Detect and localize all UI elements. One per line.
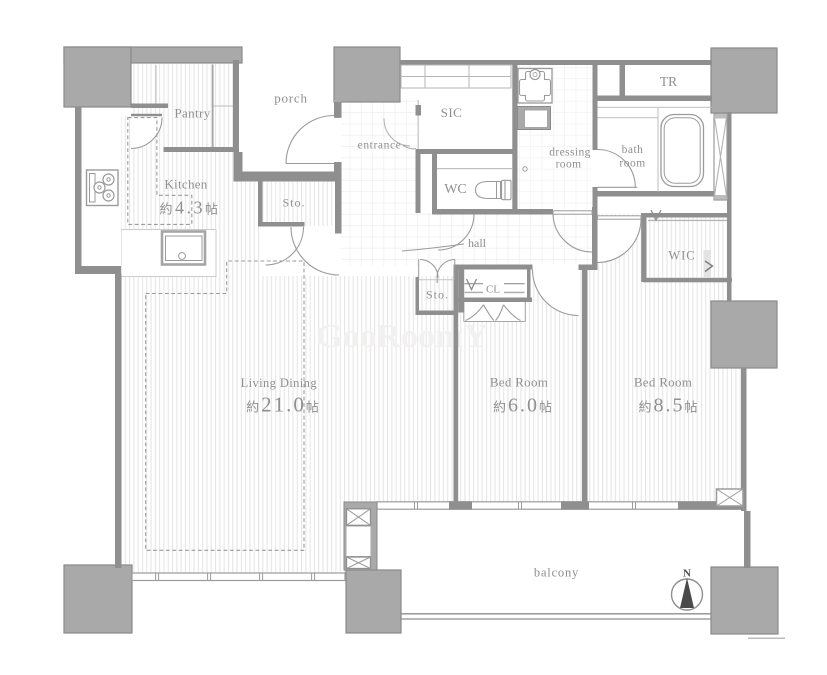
- svg-text:N: N: [683, 568, 691, 580]
- svg-text:Bed Room: Bed Room: [490, 375, 548, 390]
- svg-text:GooRoomY: GooRoomY: [316, 318, 488, 355]
- svg-text:TR: TR: [660, 74, 677, 89]
- svg-text:WIC: WIC: [668, 249, 695, 263]
- svg-text:Sto.: Sto.: [426, 288, 449, 302]
- svg-text:room: room: [556, 159, 582, 171]
- svg-text:SIC: SIC: [441, 105, 463, 120]
- svg-text:balcony: balcony: [534, 566, 579, 580]
- svg-text:hall: hall: [468, 236, 487, 250]
- svg-text:room: room: [619, 158, 645, 170]
- svg-text:Bed Room: Bed Room: [634, 375, 692, 390]
- svg-text:Kitchen: Kitchen: [164, 177, 207, 192]
- svg-text:Pantry: Pantry: [174, 106, 210, 121]
- svg-text:Living Dining: Living Dining: [241, 376, 318, 390]
- svg-text:CL: CL: [486, 284, 500, 296]
- svg-text:dressing: dressing: [549, 147, 591, 159]
- svg-text:bath: bath: [622, 144, 644, 156]
- svg-text:Sto.: Sto.: [282, 196, 305, 210]
- svg-text:WC: WC: [444, 182, 467, 197]
- svg-text:porch: porch: [274, 91, 308, 106]
- svg-text:entrance: entrance: [358, 140, 402, 152]
